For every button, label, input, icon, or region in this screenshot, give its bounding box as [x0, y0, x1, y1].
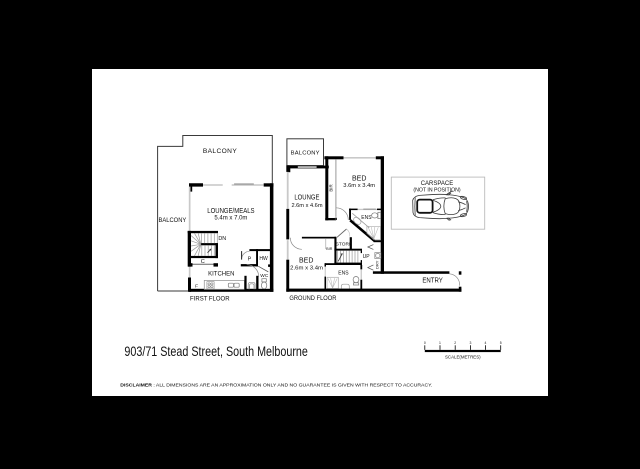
- svg-text:UP: UP: [363, 254, 371, 260]
- svg-text:HW: HW: [259, 256, 268, 262]
- svg-text:DISCLAIMER : ALL DIMENSIONS AR: DISCLAIMER : ALL DIMENSIONS ARE AN APPRO…: [120, 382, 432, 388]
- svg-text:4: 4: [485, 341, 487, 345]
- svg-text:ENS: ENS: [338, 270, 349, 276]
- svg-text:KITCHEN: KITCHEN: [208, 270, 235, 277]
- svg-text:1: 1: [439, 341, 441, 345]
- svg-text:0: 0: [424, 341, 426, 345]
- svg-text:P: P: [248, 256, 252, 262]
- svg-text:2.6m x 3.4m: 2.6m x 3.4m: [290, 265, 323, 271]
- svg-text:3.6m x 3.4m: 3.6m x 3.4m: [343, 183, 375, 189]
- svg-text:LOUNGE/MEALS: LOUNGE/MEALS: [207, 206, 254, 215]
- svg-text:ENS: ENS: [361, 215, 372, 221]
- svg-text:GROUND FLOOR: GROUND FLOOR: [289, 295, 336, 302]
- svg-text:(NOT IN POSITION): (NOT IN POSITION): [413, 187, 460, 193]
- svg-text:LOUNGE: LOUNGE: [294, 194, 319, 201]
- svg-text:903/71 Stead Street, South Mel: 903/71 Stead Street, South Melbourne: [124, 344, 308, 359]
- svg-text:WC: WC: [260, 273, 269, 279]
- svg-text:BALCONY: BALCONY: [291, 150, 320, 156]
- svg-text:2: 2: [454, 341, 456, 345]
- svg-text:BED: BED: [299, 258, 313, 265]
- svg-text:DRY: DRY: [375, 260, 380, 269]
- svg-text:SCALE(METRES): SCALE(METRES): [445, 354, 481, 359]
- svg-text:BALCONY: BALCONY: [203, 148, 238, 155]
- svg-text:FIRST FLOOR: FIRST FLOOR: [190, 296, 230, 303]
- svg-text:BALCONY: BALCONY: [159, 217, 187, 224]
- svg-text:5: 5: [500, 341, 502, 345]
- svg-text:BIR: BIR: [326, 247, 332, 251]
- svg-text:BED: BED: [352, 176, 366, 183]
- svg-text:CARSPACE: CARSPACE: [421, 180, 454, 187]
- svg-text:C: C: [201, 259, 205, 265]
- svg-text:ENTRY: ENTRY: [422, 278, 443, 285]
- svg-text:BIR: BIR: [329, 184, 334, 191]
- svg-text:5.4m x 7.0m: 5.4m x 7.0m: [214, 216, 247, 222]
- svg-text:STORE: STORE: [336, 241, 352, 247]
- svg-text:DN: DN: [218, 236, 226, 242]
- svg-text:2.6m x 4.6m: 2.6m x 4.6m: [291, 203, 322, 209]
- svg-text:F: F: [195, 283, 198, 289]
- svg-text:3: 3: [469, 341, 471, 345]
